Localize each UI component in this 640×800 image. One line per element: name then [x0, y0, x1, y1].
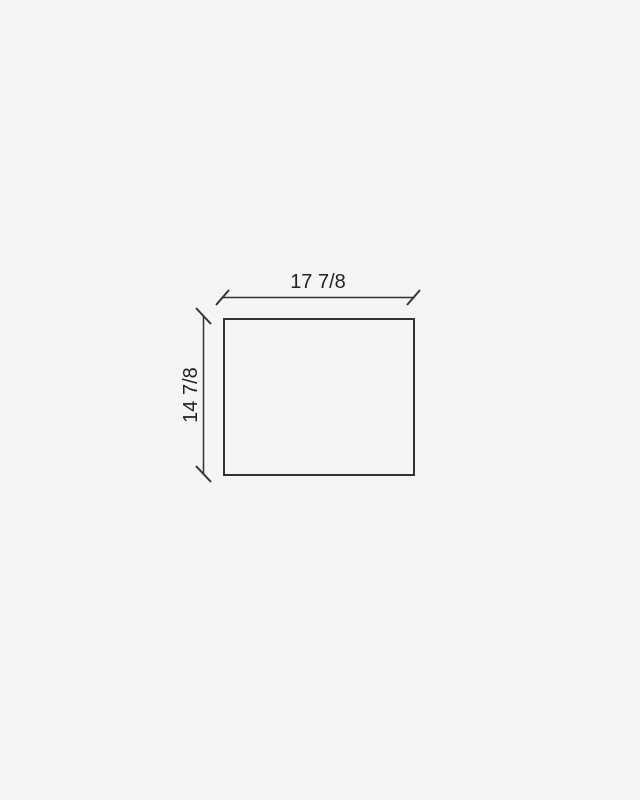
dimension-drawing: 17 7/8 14 7/8	[0, 0, 640, 800]
part-outline	[224, 319, 414, 475]
drawing-canvas	[0, 0, 640, 800]
height-dimension-label: 14 7/8	[178, 341, 204, 449]
width-dimension-label: 17 7/8	[264, 269, 372, 295]
